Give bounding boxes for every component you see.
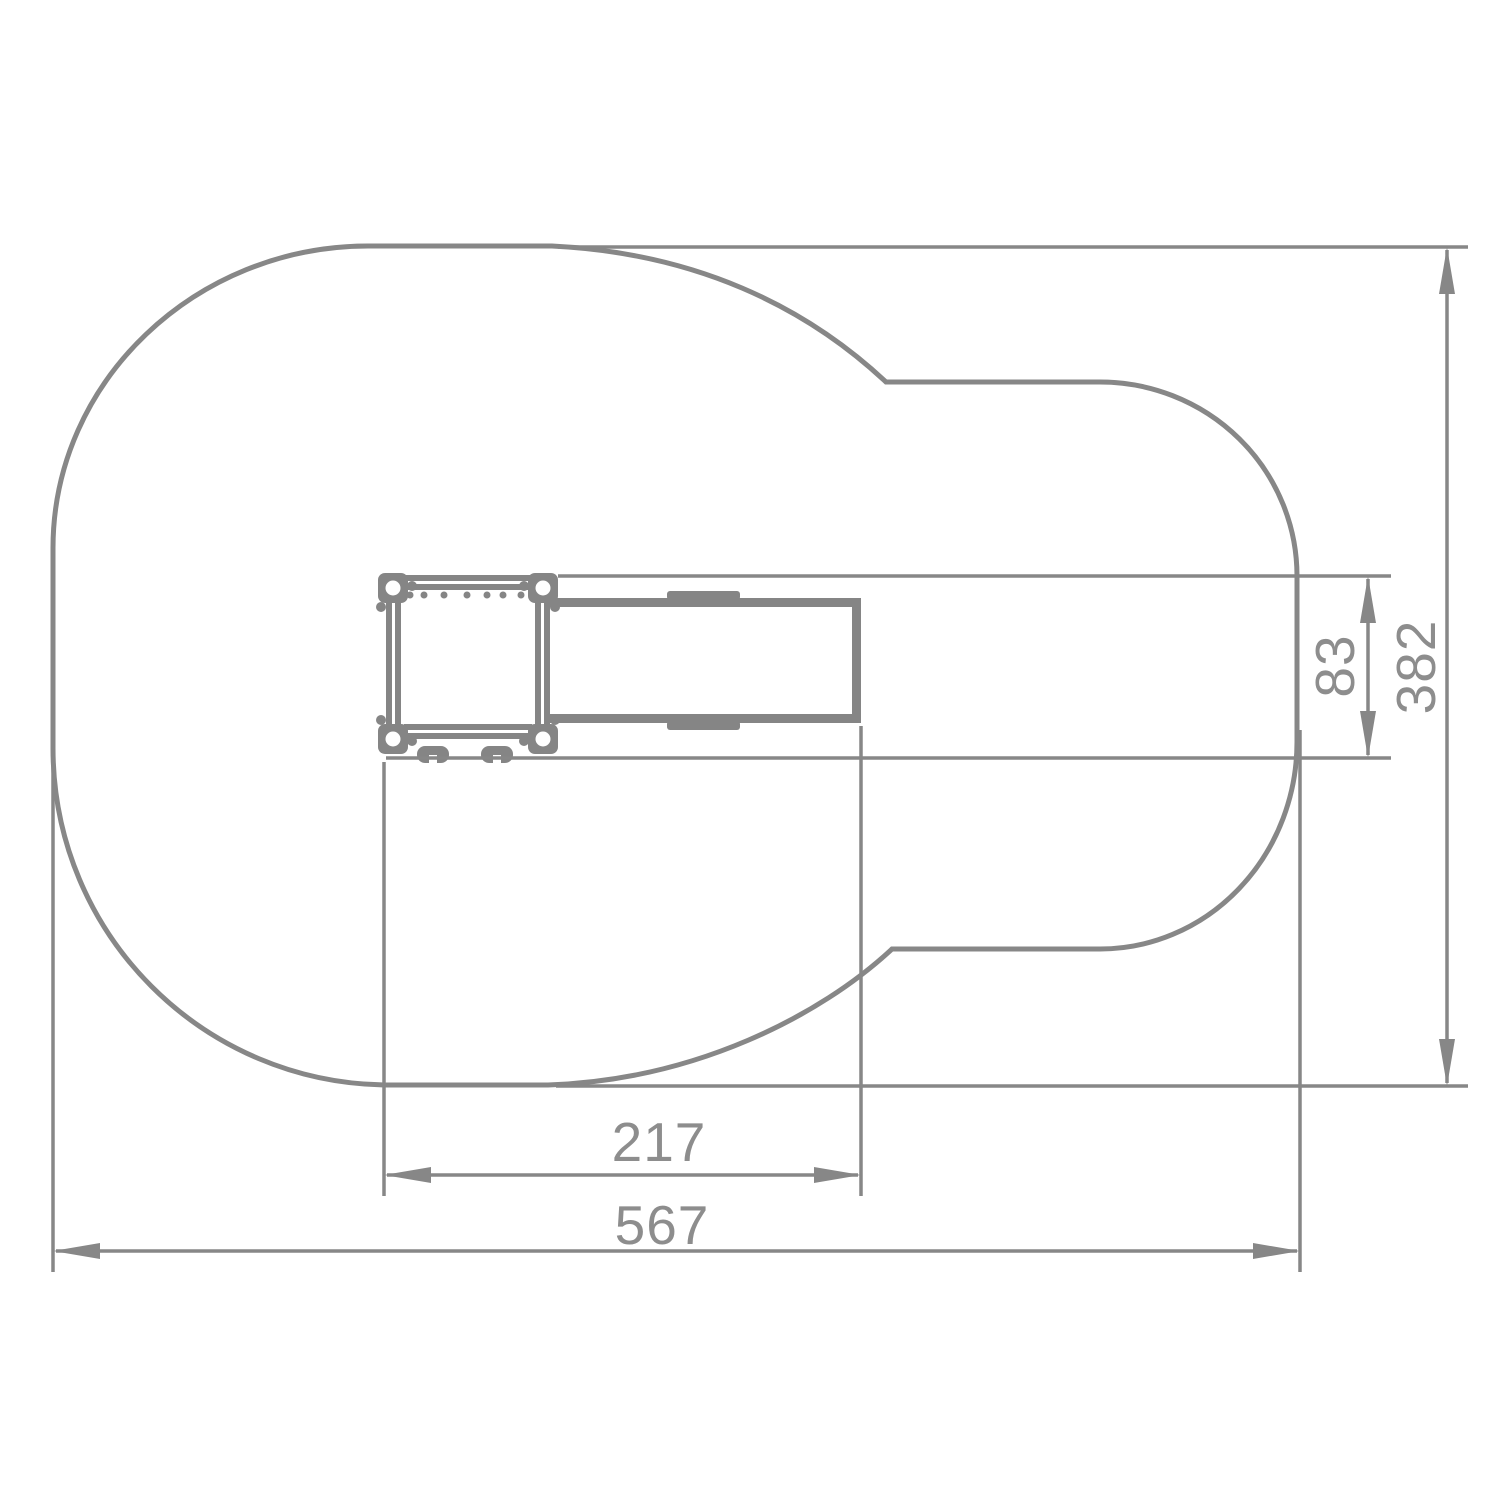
platform-rail-top-stripe [404,581,532,584]
dim-382-arrow-down [1439,1039,1455,1086]
slide-end-cap [852,600,861,721]
platform-rail-bottom-stripe [404,730,532,733]
dim-567-arrow-left [53,1243,100,1259]
dim-overall-width: 567 [53,730,1300,1272]
dimensions: 382 83 217 567 [53,247,1468,1272]
equipment [376,573,861,763]
railing-balusters [407,592,525,599]
plan-drawing-svg: 382 83 217 567 [0,0,1500,1500]
dim-217-label: 217 [612,1111,707,1173]
plan-drawing-page: 382 83 217 567 [0,0,1500,1500]
post-clamp-nubs [376,581,560,746]
post-top-left-hole [386,581,401,596]
slide-hump-bottom [667,721,740,730]
platform [376,573,560,763]
platform-rail-left-stripe [392,599,395,726]
dim-217-arrow-left [384,1167,431,1183]
slide [548,591,861,730]
dim-382-arrow-up [1439,247,1455,294]
dim-217-arrow-right [814,1167,861,1183]
dim-83-arrow-up [1360,576,1376,623]
post-top-right-hole [536,581,551,596]
post-bottom-right-hole [536,732,551,747]
platform-rail-right-stripe [541,599,544,726]
dim-83-arrow-down [1360,711,1376,758]
dim-footprint-width: 217 [384,726,861,1196]
dim-567-arrow-right [1253,1243,1300,1259]
post-bottom-left-hole [386,732,401,747]
dim-567-label: 567 [615,1194,710,1256]
dim-382-label: 382 [1385,620,1447,715]
safety-zone-outline [53,246,1297,1085]
dim-83-label: 83 [1304,634,1366,697]
platform-feet [417,746,513,763]
slide-hump-top [667,591,740,600]
safety-zone [53,246,1297,1085]
